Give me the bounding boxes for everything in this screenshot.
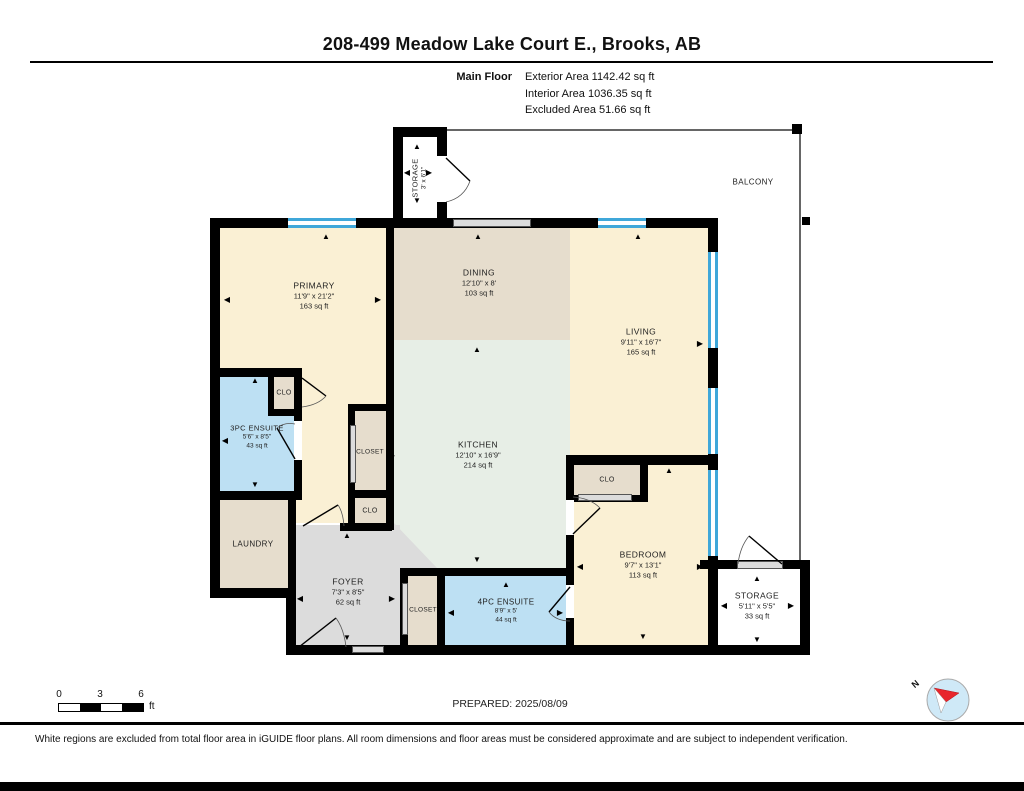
dimension-arrow-icon: ▲ — [413, 143, 421, 151]
room-dims: 11'9" x 21'2" — [293, 292, 334, 302]
window — [708, 470, 718, 556]
room-name: CLO — [599, 477, 614, 484]
scale-segment — [80, 704, 101, 711]
scale-segment — [122, 704, 143, 711]
room-dims: 9'11" x 16'7" — [621, 338, 662, 348]
room-dims: 8'9" x 5' — [478, 607, 535, 616]
room-area: 62 sq ft — [332, 598, 365, 608]
dimension-arrow-icon: ▲ — [753, 575, 761, 583]
room-dims: 5'11" x 5'5" — [735, 602, 779, 612]
balcony-post-marker — [792, 124, 802, 134]
room-name: BEDROOM — [620, 550, 667, 561]
stat-exterior-area: Exterior Area 1142.42 sq ft — [525, 71, 654, 83]
scale-unit: ft — [149, 701, 155, 712]
closet-door — [350, 425, 356, 483]
wall — [400, 568, 574, 576]
room-label-3pc-ensuite: 3PC ENSUITE 5'6" x 8'5" 43 sq ft — [230, 424, 284, 451]
window — [598, 218, 646, 228]
door-opening — [294, 421, 302, 460]
dimension-arrow-icon: ◀ — [404, 169, 410, 177]
dimension-arrow-icon: ▲ — [343, 532, 351, 540]
balcony-outline-right — [799, 129, 801, 560]
wall — [566, 455, 574, 655]
dimension-arrow-icon: ▼ — [251, 481, 259, 489]
scale-segment — [101, 704, 122, 711]
prepared-date: PREPARED: 2025/08/09 — [452, 698, 567, 710]
wall — [210, 218, 220, 598]
footer-divider — [0, 722, 1024, 725]
room-area: 163 sq ft — [293, 302, 334, 312]
room-label-storage-top: STORAGE 3' x 6'1" — [411, 158, 430, 197]
dimension-arrow-icon: ▲ — [474, 233, 482, 241]
dimension-arrow-icon: ◀ — [297, 595, 303, 603]
wall — [800, 560, 810, 655]
room-name: CLO — [276, 390, 291, 397]
wall — [288, 491, 296, 591]
dimension-arrow-icon: ▲ — [502, 581, 510, 589]
dimension-arrow-icon: ▶ — [389, 452, 395, 460]
room-dims: 5'6" x 8'5" — [230, 433, 284, 442]
room-area: 43 sq ft — [230, 442, 284, 451]
room-dims: 3' x 6'1" — [420, 158, 430, 197]
wall — [437, 568, 445, 655]
dimension-arrow-icon: ▲ — [665, 467, 673, 475]
room-label-closet-foyer: CLOSET — [409, 607, 437, 614]
room-name: FOYER — [332, 577, 365, 588]
floor-label: Main Floor — [430, 71, 512, 83]
stat-interior-area: Interior Area 1036.35 sq ft — [525, 88, 652, 100]
room-name: LAUNDRY — [233, 539, 274, 550]
room-dims: 7'3" x 8'5" — [332, 588, 365, 598]
room-dims: 12'10" x 16'9" — [455, 451, 500, 461]
dimension-arrow-icon: ▼ — [473, 556, 481, 564]
room-name: DINING — [462, 268, 496, 279]
bottom-bar — [0, 782, 1024, 791]
dimension-arrow-icon: ▶ — [788, 602, 794, 610]
door-opening — [566, 500, 574, 535]
header-divider — [30, 61, 993, 63]
dimension-arrow-icon: ▶ — [375, 296, 381, 304]
closet-door — [578, 494, 632, 501]
room-area: 33 sq ft — [735, 612, 779, 622]
room-area: 44 sq ft — [478, 616, 535, 625]
room-dims: 12'10" x 8' — [462, 279, 496, 289]
room-label-4pc-ensuite: 4PC ENSUITE 8'9" x 5' 44 sq ft — [478, 598, 535, 625]
room-label-bedroom: BEDROOM 9'7" x 13'1" 113 sq ft — [620, 550, 667, 581]
disclaimer-text: White regions are excluded from total fl… — [35, 734, 848, 745]
room-area: 165 sq ft — [621, 348, 662, 358]
dimension-arrow-icon: ▶ — [389, 595, 395, 603]
room-label-primary: PRIMARY 11'9" x 21'2" 163 sq ft — [293, 281, 334, 312]
dimension-arrow-icon: ▶ — [557, 609, 563, 617]
dimension-arrow-icon: ▶ — [697, 340, 703, 348]
dimension-arrow-icon: ▼ — [639, 633, 647, 641]
wall — [210, 588, 296, 598]
dimension-arrow-icon: ◀ — [448, 609, 454, 617]
dimension-arrow-icon: ▼ — [753, 636, 761, 644]
scale-tick-6: 6 — [138, 689, 144, 700]
scale-segment — [59, 704, 80, 711]
window — [708, 388, 718, 454]
dimension-arrow-icon: ▼ — [343, 634, 351, 642]
room-label-foyer: FOYER 7'3" x 8'5" 62 sq ft — [332, 577, 365, 608]
storage-door — [737, 561, 783, 569]
scale-tick-0: 0 — [56, 689, 62, 700]
wall — [386, 222, 394, 530]
dimension-arrow-icon: ▲ — [473, 346, 481, 354]
floorplan-page: 208-499 Meadow Lake Court E., Brooks, AB… — [0, 0, 1024, 791]
dimension-arrow-icon: ▶ — [426, 169, 432, 177]
room-dims: 9'7" x 13'1" — [620, 561, 667, 571]
wall — [340, 523, 392, 531]
dimension-arrow-icon: ▶ — [697, 563, 703, 571]
room-area: 103 sq ft — [462, 289, 496, 299]
dimension-arrow-icon: ◀ — [222, 437, 228, 445]
scale-bar — [58, 703, 144, 712]
dimension-arrow-icon: ◀ — [577, 563, 583, 571]
compass-north-label: N — [910, 678, 921, 690]
dimension-arrow-icon: ▲ — [251, 377, 259, 385]
window — [708, 252, 718, 348]
closet-door — [402, 583, 408, 635]
room-label-dining: DINING 12'10" x 8' 103 sq ft — [462, 268, 496, 299]
page-title: 208-499 Meadow Lake Court E., Brooks, AB — [0, 34, 1024, 55]
entry-threshold — [352, 646, 384, 653]
wall — [213, 491, 296, 500]
room-label-laundry: LAUNDRY — [233, 539, 274, 550]
room-name: 3PC ENSUITE — [230, 424, 284, 433]
dimension-arrow-icon: ▲ — [322, 233, 330, 241]
room-name: STORAGE — [735, 591, 779, 602]
room-label-kitchen: KITCHEN 12'10" x 16'9" 214 sq ft — [455, 440, 500, 471]
wall — [393, 127, 403, 228]
compass-icon — [925, 677, 971, 723]
room-name: PRIMARY — [293, 281, 334, 292]
room-name: CLO — [362, 508, 377, 515]
room-label-storage-br: STORAGE 5'11" x 5'5" 33 sq ft — [735, 591, 779, 622]
window — [288, 218, 356, 228]
balcony-post-marker — [802, 217, 810, 225]
dimension-arrow-icon: ◀ — [721, 602, 727, 610]
dimension-arrow-icon: ▲ — [634, 233, 642, 241]
stat-excluded-area: Excluded Area 51.66 sq ft — [525, 104, 650, 116]
room-name: KITCHEN — [455, 440, 500, 451]
room-name: STORAGE — [411, 158, 420, 197]
wall — [348, 490, 392, 498]
dimension-arrow-icon: ◀ — [224, 296, 230, 304]
balcony-door — [453, 219, 531, 227]
room-name: BALCONY — [732, 177, 773, 188]
door-opening — [437, 156, 447, 202]
wall — [348, 404, 392, 411]
room-name: LIVING — [621, 327, 662, 338]
room-name: CLOSET — [356, 449, 384, 456]
balcony-outline-top — [447, 129, 800, 131]
wall — [708, 560, 718, 655]
room-area: 214 sq ft — [455, 461, 500, 471]
room-name: CLOSET — [409, 607, 437, 614]
room-label-living: LIVING 9'11" x 16'7" 165 sq ft — [621, 327, 662, 358]
room-label-clo-hall: CLO — [362, 508, 377, 515]
room-label-clo-primary: CLO — [276, 390, 291, 397]
room-label-closet-primary: CLOSET — [356, 449, 384, 456]
room-label-clo-bedroom: CLO — [599, 477, 614, 484]
room-label-balcony: BALCONY — [732, 177, 773, 188]
door-opening — [566, 585, 574, 618]
room-area: 113 sq ft — [620, 571, 667, 581]
room-name: 4PC ENSUITE — [478, 598, 535, 607]
dimension-arrow-icon: ▼ — [413, 197, 421, 205]
scale-tick-3: 3 — [97, 689, 103, 700]
